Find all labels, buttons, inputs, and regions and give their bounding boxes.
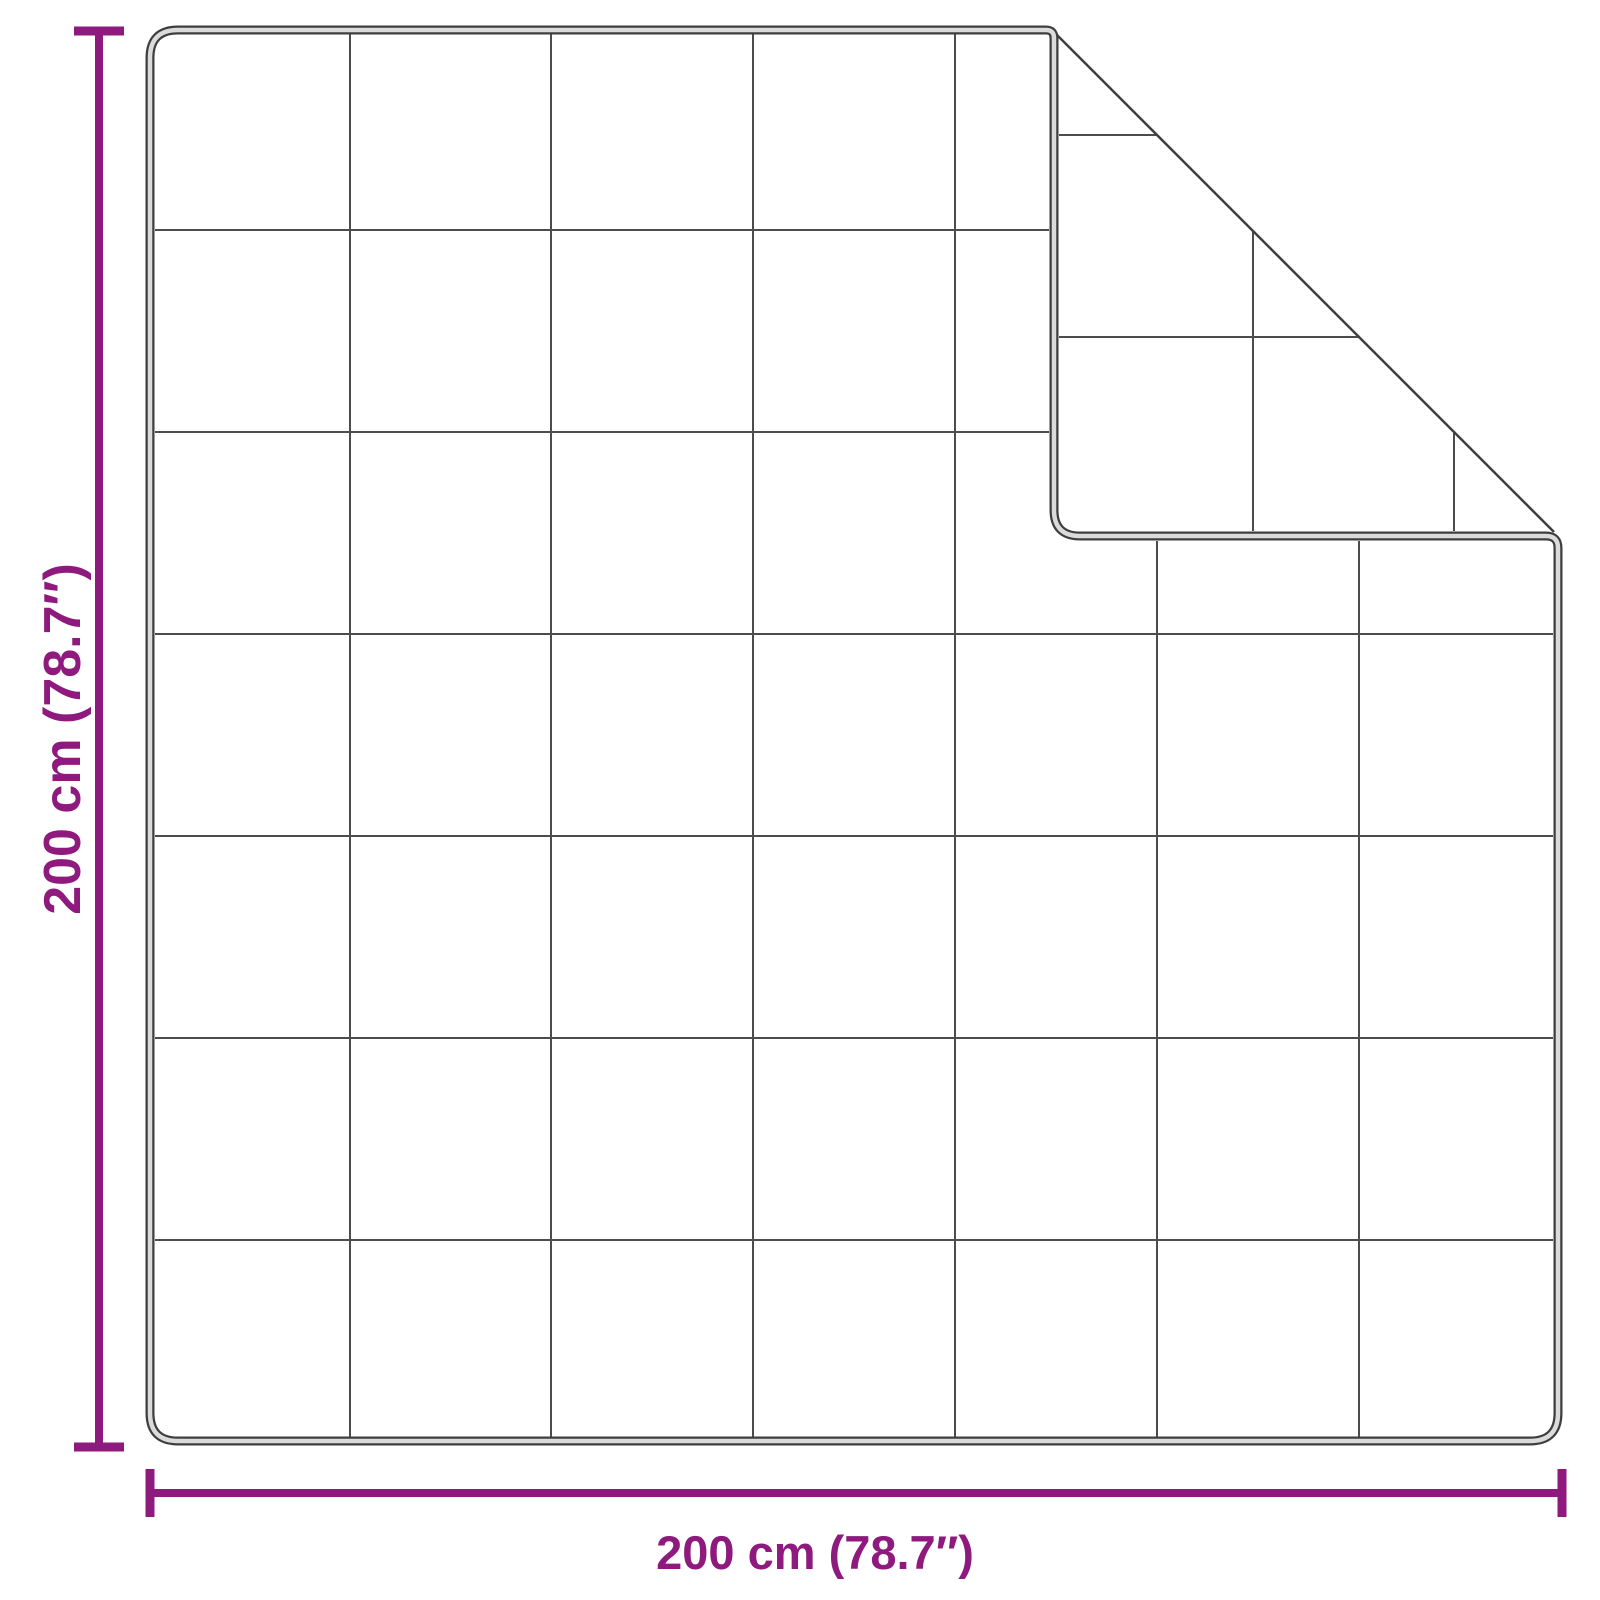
diagram-canvas: 200 cm (78.7″) 200 cm (78.7″) xyxy=(0,0,1600,1600)
vertical-dimension: 200 cm (78.7″) xyxy=(34,31,124,1447)
horizontal-dimension: 200 cm (78.7″) xyxy=(150,1469,1562,1579)
blanket-dimension-diagram: 200 cm (78.7″) 200 cm (78.7″) xyxy=(0,0,1600,1600)
blanket xyxy=(150,30,1558,1441)
flap-quilt-grid xyxy=(1059,135,1454,531)
width-dimension-label: 200 cm (78.7″) xyxy=(656,1526,974,1579)
fold-crease-line xyxy=(1057,35,1554,532)
blanket-body xyxy=(150,30,1558,1441)
height-dimension-label: 200 cm (78.7″) xyxy=(34,563,92,915)
